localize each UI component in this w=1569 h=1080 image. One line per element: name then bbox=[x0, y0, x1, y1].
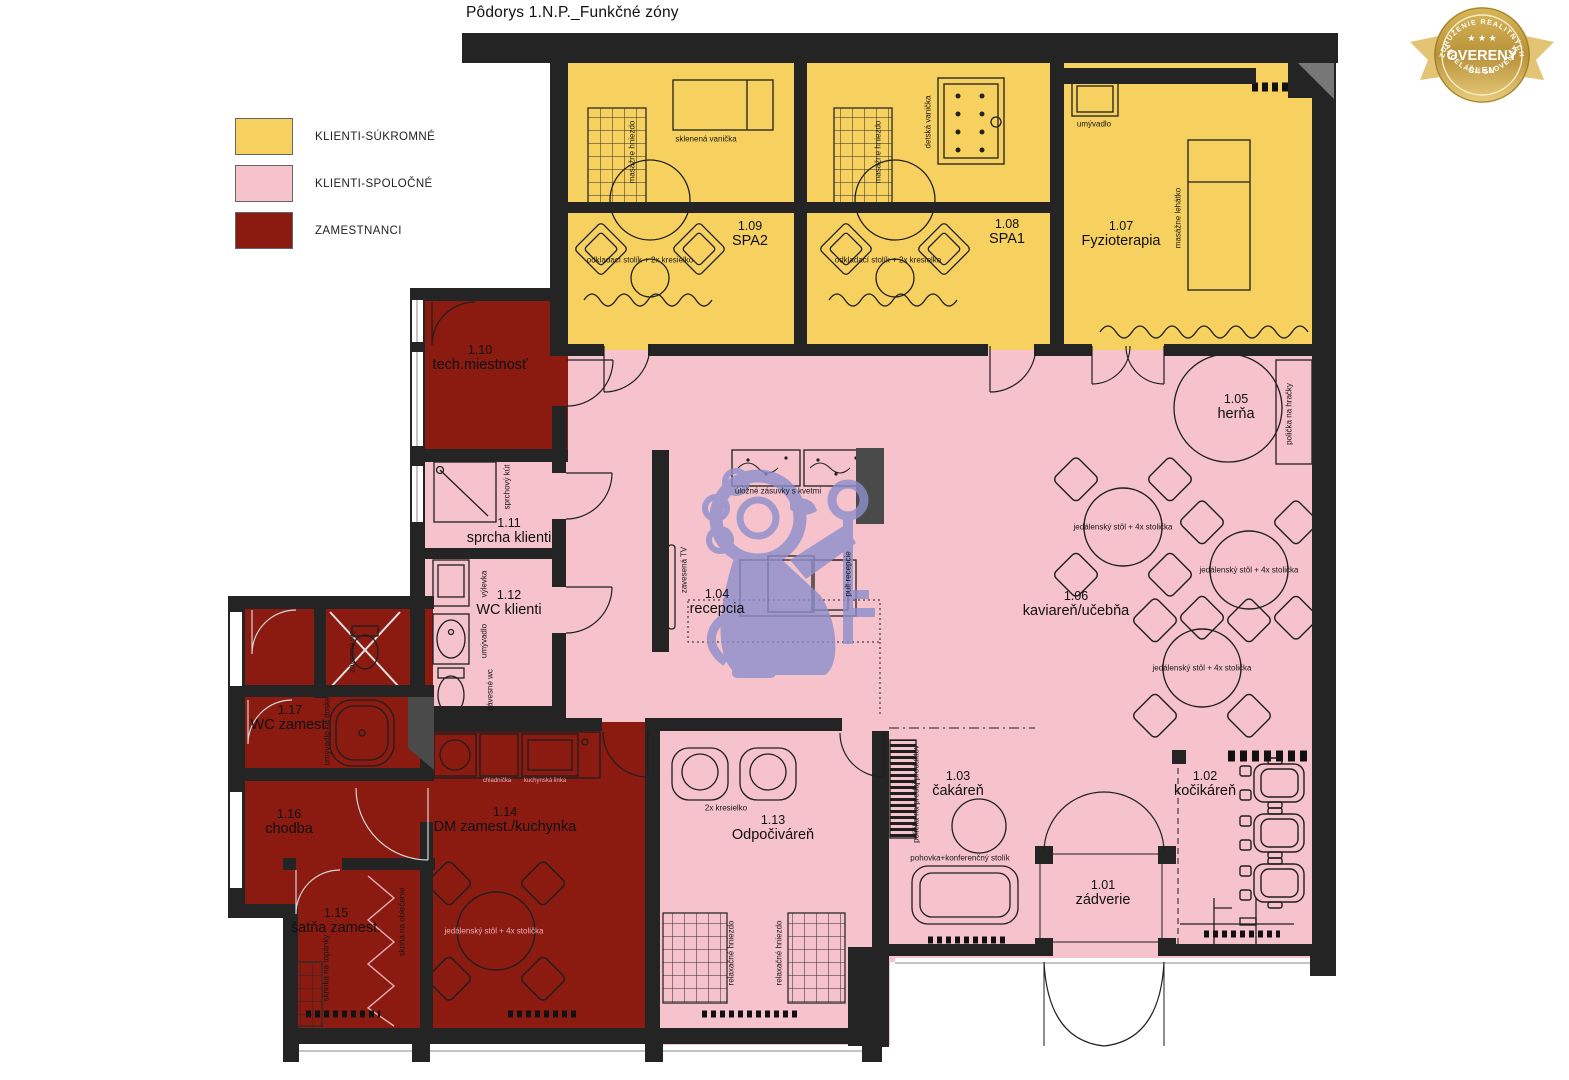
annotation-1: sklenená vanička bbox=[675, 135, 736, 144]
annotation-4: detská vanička bbox=[924, 96, 933, 149]
room-number: 1.10 bbox=[433, 343, 528, 357]
annotation-30: kuchynská linka bbox=[524, 778, 566, 784]
annotation-23: pohovka+konferenčný stolík bbox=[910, 854, 1009, 863]
room-label-1.13: 1.13Odpočiváreň bbox=[732, 813, 814, 843]
badge-main-text: OVERENÝ bbox=[1447, 46, 1518, 64]
annotation-5: odkladací stolík + 2x kresielko bbox=[835, 256, 942, 265]
annotation-12: zavesená TV bbox=[680, 547, 689, 594]
room-name: kočikáreň bbox=[1174, 783, 1236, 799]
room-name: WC klienti bbox=[476, 602, 541, 618]
annotation-20: relaxačné hniezdo bbox=[727, 921, 736, 986]
room-number: 1.14 bbox=[434, 805, 577, 819]
annotation-11: závesné wc bbox=[486, 669, 495, 711]
annotation-13: úložné zásuvky s kvetmi bbox=[735, 487, 821, 496]
annotation-10: umývadlo bbox=[480, 624, 489, 658]
annotation-15: polička na hračky bbox=[1285, 383, 1294, 445]
room-number: 1.08 bbox=[989, 217, 1025, 231]
annotation-22: 2x kresielko bbox=[705, 804, 747, 813]
room-name: šatňa zamest. bbox=[291, 920, 381, 936]
annotation-17: jedálenský stôl + 4x stolička bbox=[1200, 566, 1299, 575]
floorplan-drawing bbox=[0, 0, 1569, 1080]
room-number: 1.03 bbox=[932, 769, 984, 783]
annotation-27: skriňa na oblečenie bbox=[398, 888, 407, 957]
room-label-1.09: 1.09SPA2 bbox=[732, 219, 768, 249]
room-name: čakáreň bbox=[932, 783, 984, 799]
room-label-1.14: 1.14DM zamest./kuchynka bbox=[434, 805, 577, 835]
room-number: 1.16 bbox=[265, 807, 313, 821]
annotation-18: jedálenský stôl + 4x stolička bbox=[1153, 664, 1252, 673]
room-number: 1.05 bbox=[1217, 392, 1254, 406]
room-label-1.08: 1.08SPA1 bbox=[989, 217, 1025, 247]
verified-member-badge: ZDRUŽENIE REALITNÝCH KANCELÁRIÍ SLOVENSK… bbox=[1402, 0, 1562, 110]
badge-stars: ★ ★ ★ bbox=[1467, 33, 1496, 43]
room-name: kaviareň/učebňa bbox=[1023, 603, 1129, 619]
room-number: 1.13 bbox=[732, 813, 814, 827]
annotation-29: chladnička bbox=[483, 778, 511, 784]
room-number: 1.01 bbox=[1076, 878, 1131, 892]
annotation-25: umývadlo na doske bbox=[323, 697, 332, 766]
room-label-1.03: 1.03čakáreň bbox=[932, 769, 984, 799]
annotation-21: relaxačné hniezdo bbox=[775, 921, 784, 986]
room-label-1.16: 1.16chodba bbox=[265, 807, 313, 837]
room-number: 1.06 bbox=[1023, 589, 1129, 603]
room-number: 1.11 bbox=[467, 516, 552, 530]
room-number: 1.02 bbox=[1174, 769, 1236, 783]
annotation-8: sprchový kút bbox=[503, 465, 512, 510]
room-number: 1.07 bbox=[1082, 219, 1161, 233]
room-number: 1.15 bbox=[291, 906, 381, 920]
floorplan-page: Pôdorys 1.N.P._Funkčné zóny KLIENTI-SÚKR… bbox=[0, 0, 1569, 1080]
room-name: SPA2 bbox=[732, 233, 768, 249]
annotation-2: odkladací stolík + 2x kresielko bbox=[587, 256, 694, 265]
annotation-28: skrinka na topánky bbox=[322, 935, 331, 1002]
room-label-1.04: 1.04recepcia bbox=[690, 587, 745, 617]
room-name: SPA1 bbox=[989, 231, 1025, 247]
room-name: tech.miestnosť bbox=[433, 357, 528, 373]
room-name: zádverie bbox=[1076, 892, 1131, 908]
room-name: sprcha klienti bbox=[467, 530, 552, 546]
annotation-19: jedálenský stôl + 4x stolička bbox=[445, 927, 544, 936]
room-number: 1.04 bbox=[690, 587, 745, 601]
annotation-7: masážne lehátko bbox=[1174, 188, 1183, 248]
annotation-26: závesné wc bbox=[348, 631, 357, 673]
room-name: WC zamest. bbox=[251, 717, 330, 733]
room-name: recepcia bbox=[690, 601, 745, 617]
room-number: 1.09 bbox=[732, 219, 768, 233]
room-label-1.02: 1.02kočikáreň bbox=[1174, 769, 1236, 799]
room-name: herňa bbox=[1217, 406, 1254, 422]
annotation-24: polička na predaj produktov bbox=[912, 745, 921, 843]
room-name: chodba bbox=[265, 821, 313, 837]
room-label-1.01: 1.01zádverie bbox=[1076, 878, 1131, 908]
room-name: Odpočiváreň bbox=[732, 827, 814, 843]
annotation-9: výlevka bbox=[480, 571, 489, 598]
room-label-1.06: 1.06kaviareň/učebňa bbox=[1023, 589, 1129, 619]
room-label-1.11: 1.11sprcha klienti bbox=[467, 516, 552, 546]
zone-fills bbox=[233, 40, 1316, 1045]
room-number: 1.17 bbox=[251, 703, 330, 717]
annotation-3: masážne hniezdo bbox=[874, 121, 883, 184]
room-label-1.15: 1.15šatňa zamest. bbox=[291, 906, 381, 936]
annotation-6: umývadlo bbox=[1077, 120, 1111, 129]
room-name: DM zamest./kuchynka bbox=[434, 819, 577, 835]
annotation-16: jedálenský stôl + 4x stolička bbox=[1074, 523, 1173, 532]
room-label-1.10: 1.10tech.miestnosť bbox=[433, 343, 528, 373]
badge-sub-text: ČLEN bbox=[1468, 64, 1495, 75]
room-name: Fyzioterapia bbox=[1082, 233, 1161, 249]
annotation-14: pult recepcie bbox=[844, 551, 853, 596]
annotation-0: masážne hniezdo bbox=[628, 121, 637, 184]
room-label-1.17: 1.17WC zamest. bbox=[251, 703, 330, 733]
room-label-1.05: 1.05herňa bbox=[1217, 392, 1254, 422]
room-label-1.07: 1.07Fyzioterapia bbox=[1082, 219, 1161, 249]
